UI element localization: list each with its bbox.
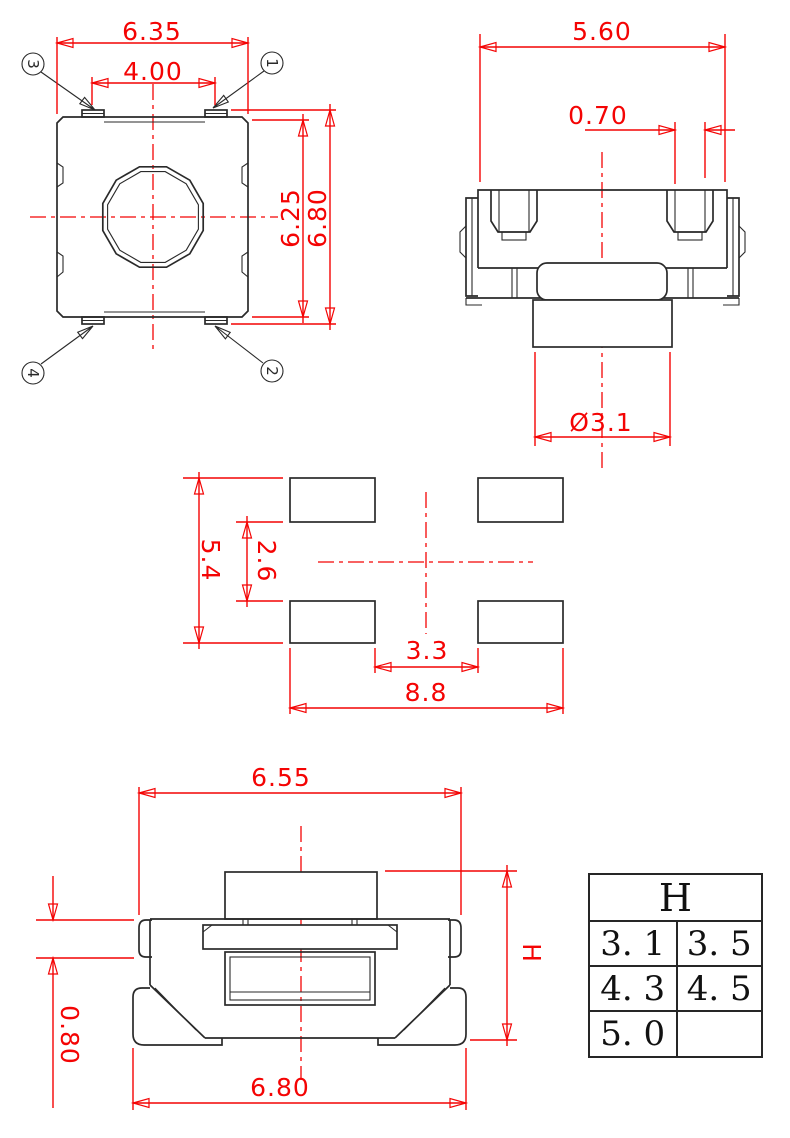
pin-number-2: 2 — [263, 366, 281, 376]
leader-pin2 — [215, 326, 263, 363]
leader-pin3 — [41, 72, 95, 110]
top-view-dimensions: 6.35 4.00 6.25 6.80 — [57, 17, 336, 330]
dim-pad-outer-horizontal-label: 8.8 — [405, 678, 448, 707]
table-cell-h-3-5: 3. 5 — [676, 922, 762, 967]
leader-pin4 — [41, 326, 93, 364]
pad-bottom-left — [290, 601, 375, 643]
leader-pin1 — [213, 71, 264, 108]
right-notch-lower — [242, 252, 248, 277]
dim-body-width-label: 5.60 — [572, 17, 632, 46]
right-foot — [378, 988, 466, 1045]
dim-lug-width-label: 0.70 — [568, 101, 628, 130]
pad-bottom-right — [478, 601, 563, 643]
dim-pad-inner-vertical-label: 2.6 — [252, 540, 281, 583]
table-header-h: H — [590, 875, 761, 922]
table-cell-h-5-0: 5. 0 — [590, 1012, 676, 1056]
dim-top-width-label: 6.35 — [122, 17, 182, 46]
table-cell-h-4-3: 4. 3 — [590, 967, 676, 1012]
dim-top-width-label: 6.55 — [251, 763, 311, 792]
dim-stem-diameter-label: Ø3.1 — [569, 408, 632, 437]
left-foot — [133, 988, 222, 1045]
technical-drawing-sheet: 3 1 4 2 6.35 4.00 6.25 6.80 — [0, 0, 790, 1138]
dim-height-label: H — [517, 943, 546, 963]
pin-number-1: 1 — [263, 58, 281, 68]
top-view: 3 1 4 2 6.35 4.00 6.25 6.80 — [22, 17, 336, 384]
land-pattern-view: 5.4 2.6 3.3 8.8 — [183, 472, 563, 714]
pad-top-left — [290, 478, 375, 522]
dim-pad-inner-horizontal-label: 3.3 — [406, 636, 449, 665]
table-cell-empty — [676, 1012, 762, 1056]
dim-overall-height-label: 6.80 — [303, 188, 332, 248]
actuator-knob — [225, 872, 377, 919]
dim-pad-outer-vertical-label: 5.4 — [196, 539, 225, 582]
height-options-table: H 3. 1 3. 5 4. 3 4. 5 5. 0 — [588, 873, 763, 1058]
dim-bottom-width-label: 6.80 — [250, 1073, 310, 1102]
left-notch-lower — [57, 252, 63, 277]
dim-terminal-pitch-label: 4.00 — [123, 57, 183, 86]
right-notch-upper — [242, 163, 248, 187]
cover-flange — [203, 925, 397, 949]
land-pattern-dimensions: 5.4 2.6 3.3 8.8 — [183, 472, 563, 714]
side-view: 5.60 0.70 Ø3.1 — [460, 17, 745, 470]
pin-number-4: 4 — [24, 368, 42, 378]
inner-window — [225, 952, 375, 1005]
dome-cover — [537, 263, 667, 300]
left-notch-upper — [57, 163, 63, 187]
dim-bracket-height-label: 0.80 — [55, 1005, 84, 1065]
stem — [533, 300, 672, 347]
dim-body-height-label: 6.25 — [276, 188, 305, 248]
table-cell-h-3-1: 3. 1 — [590, 922, 676, 967]
pad-top-right — [478, 478, 563, 522]
table-cell-h-4-5: 4. 5 — [676, 967, 762, 1012]
front-view: 6.55 0.80 H 6.80 — [36, 763, 546, 1110]
pin-number-3: 3 — [24, 59, 42, 69]
